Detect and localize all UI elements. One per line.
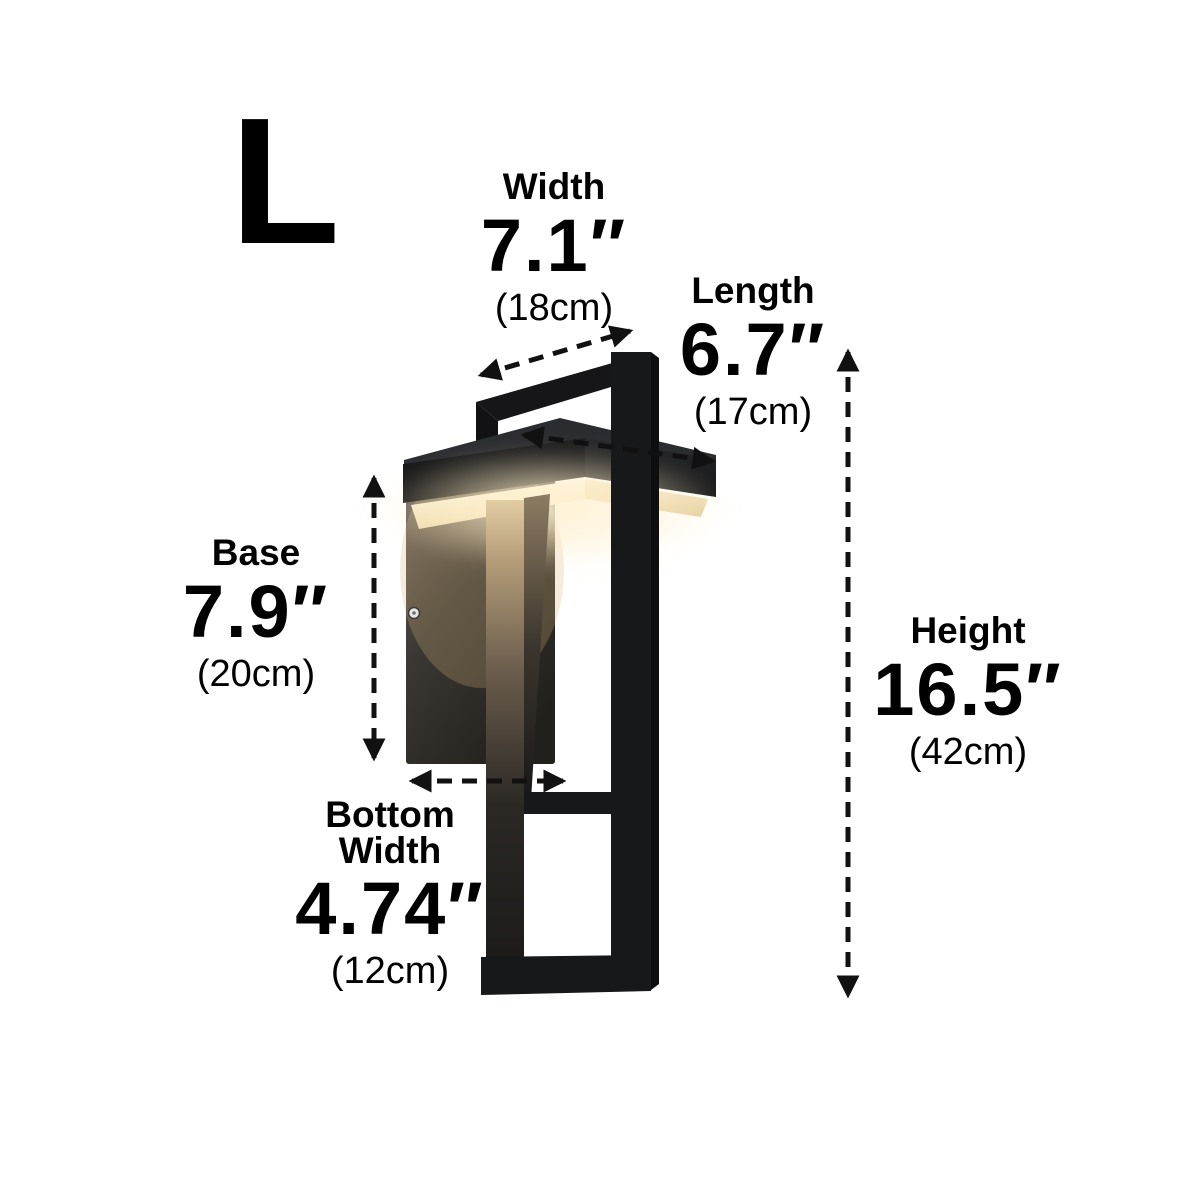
bottom-width-value-inches: 4.74″ [295, 870, 484, 948]
lamp-glow [370, 446, 730, 570]
height-value-inches: 16.5″ [873, 651, 1062, 729]
length-dimension-label: Length 6.7″ (17cm) [680, 272, 826, 434]
bottom-width-dimension-label: Bottom Width 4.74″ (12cm) [295, 797, 484, 993]
lamp-right-post [611, 352, 659, 990]
height-value-cm: (42cm) [873, 732, 1062, 774]
base-value-cm: (20cm) [183, 654, 329, 696]
width-value-inches: 7.1″ [481, 207, 627, 285]
base-label: Base [183, 534, 329, 573]
length-value-inches: 6.7″ [680, 311, 826, 389]
length-label: Length [680, 272, 826, 311]
width-value-cm: (18cm) [481, 288, 627, 330]
product-dimension-diagram: L [0, 0, 1200, 1200]
base-value-inches: 7.9″ [183, 573, 329, 651]
bottom-width-label-line1: Bottom [295, 797, 484, 833]
bottom-width-value-cm: (12cm) [295, 951, 484, 993]
height-label: Height [873, 612, 1062, 651]
length-value-cm: (17cm) [680, 392, 826, 434]
base-dimension-label: Base 7.9″ (20cm) [183, 534, 329, 696]
width-dimension-label: Width 7.1″ (18cm) [481, 168, 627, 330]
bottom-width-label-line2: Width [295, 833, 484, 869]
width-label: Width [481, 168, 627, 207]
height-dimension-label: Height 16.5″ (42cm) [873, 612, 1062, 774]
